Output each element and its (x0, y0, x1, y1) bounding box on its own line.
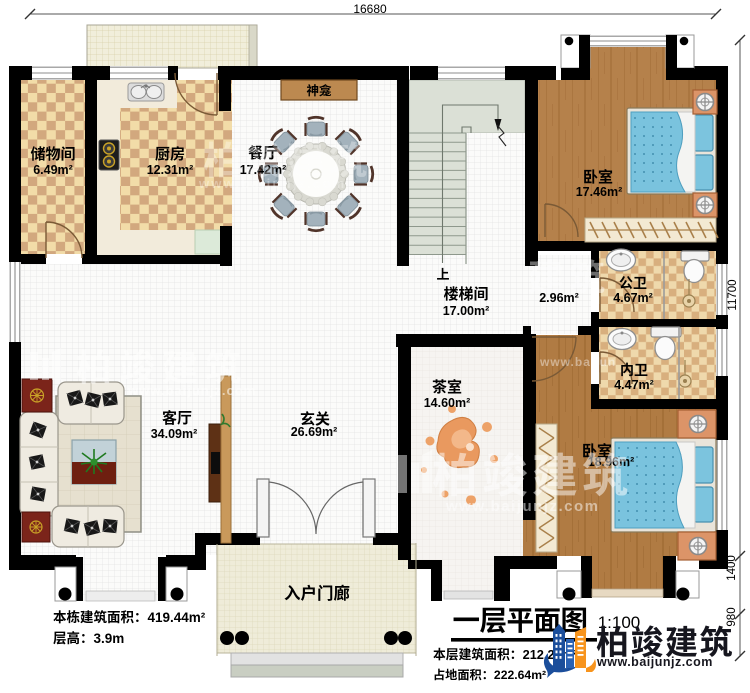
svg-text:14.60m²: 14.60m² (424, 392, 471, 411)
svg-text:17.46m²: 17.46m² (576, 181, 623, 200)
svg-text:34.09m²: 34.09m² (151, 423, 198, 442)
svg-text:入户门廊: 入户门廊 (284, 580, 350, 604)
svg-text:11700: 11700 (724, 279, 740, 310)
svg-text:6.49m²: 6.49m² (33, 159, 73, 178)
svg-text:www.baijunjz.com: www.baijunjz.com (445, 495, 599, 516)
svg-text:神龛: 神龛 (306, 80, 332, 99)
svg-text:4.47m²: 4.47m² (614, 374, 654, 393)
svg-text:www.baijun: www.baijun (539, 353, 616, 370)
svg-text:本栋建筑面积：419.44m²: 本栋建筑面积：419.44m² (53, 606, 206, 626)
svg-text:www.baijunjz.com: www.baijunjz.com (127, 380, 256, 399)
svg-text:一层平面图: 一层平面图 (453, 598, 588, 638)
svg-text:17.00m²: 17.00m² (443, 300, 490, 319)
svg-text:1400: 1400 (723, 555, 739, 581)
svg-text:建筑: 建筑 (528, 249, 610, 301)
svg-text:占地面积：222.64m²: 占地面积：222.64m² (433, 665, 546, 683)
svg-text:层高：3.9m: 层高：3.9m (53, 627, 124, 647)
svg-text:16680: 16680 (353, 0, 387, 17)
svg-text:www.baijunjz.com: www.baijunjz.com (596, 651, 713, 670)
svg-text:上: 上 (436, 264, 449, 283)
svg-text:26.69m²: 26.69m² (291, 421, 338, 440)
svg-text:4.67m²: 4.67m² (613, 287, 653, 306)
svg-text:12.31m²: 12.31m² (147, 159, 194, 178)
svg-text:www.baijunjz.com: www.baijunjz.com (198, 173, 346, 192)
